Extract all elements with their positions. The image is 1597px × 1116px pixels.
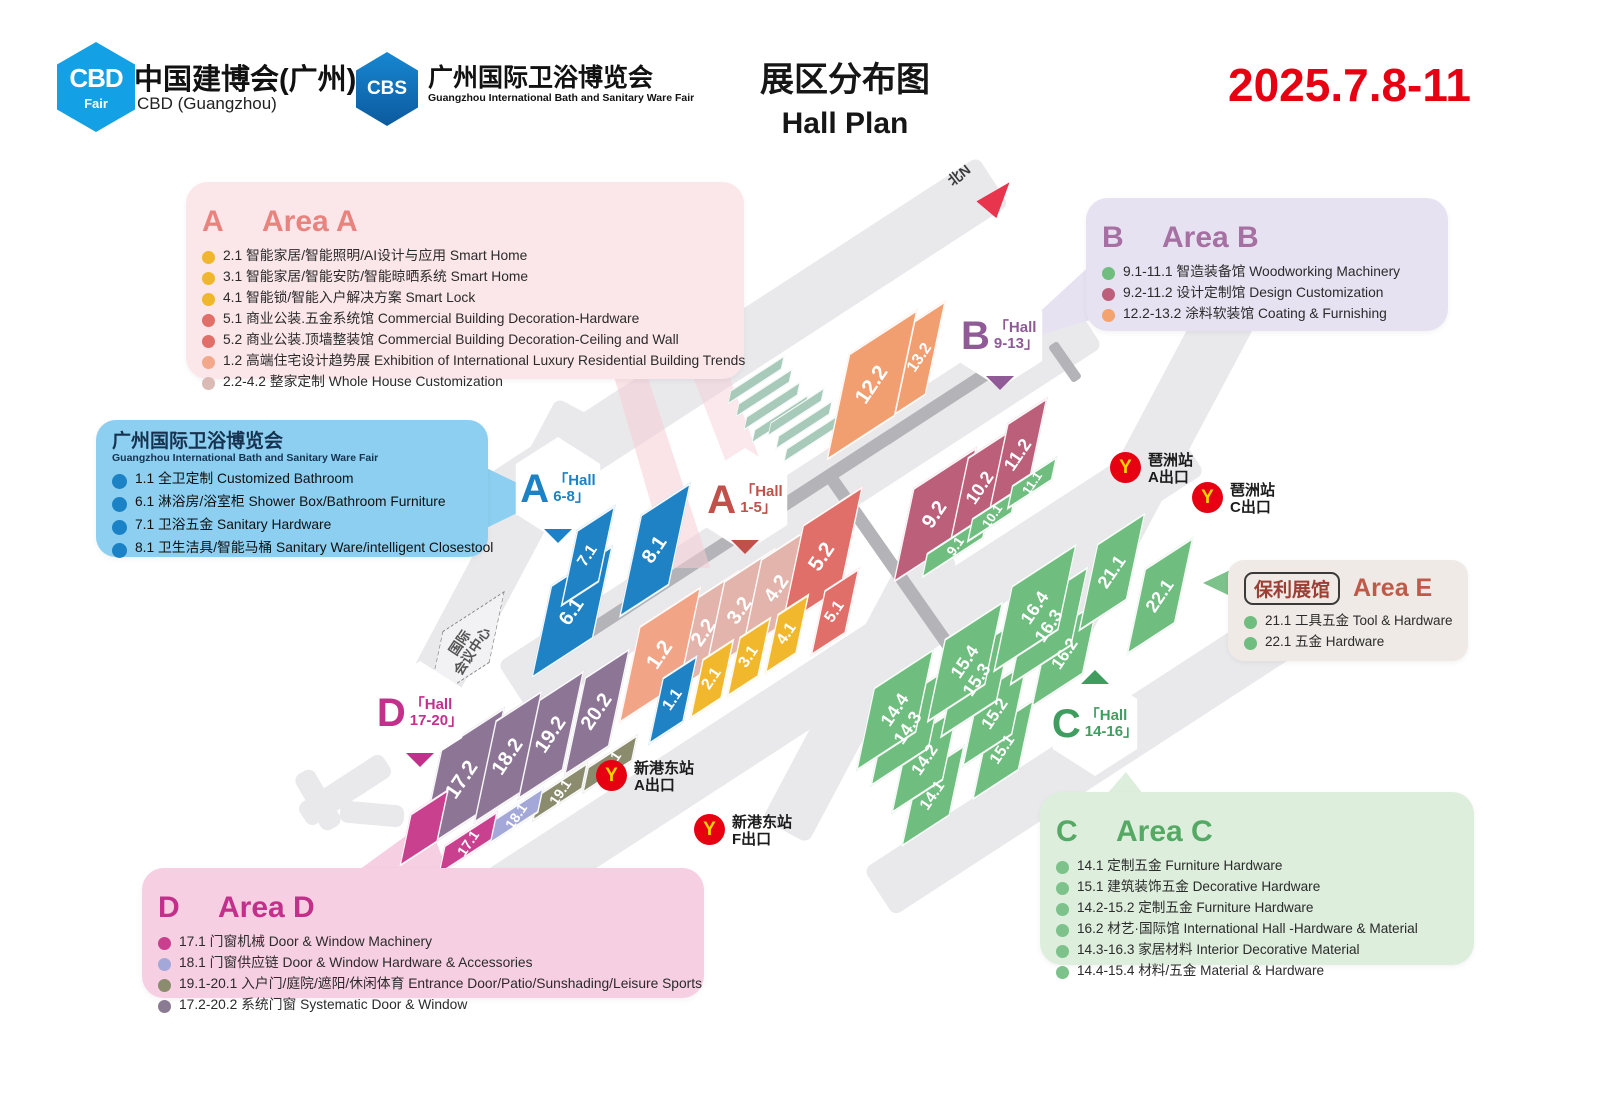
hall-plan-poster: CBD Fair 中国建博会(广州) CBD (Guangzhou) CBS 广… — [0, 0, 1597, 1116]
metro-exit-marker: Y琶洲站A出口 — [1110, 452, 1193, 486]
metro-logo-icon: Y — [694, 814, 725, 845]
legend-item: 17.1 门窗机械 Door & Window Machinery — [158, 934, 688, 950]
legend-item: 6.1 淋浴房/浴室柜 Shower Box/Bathroom Furnitur… — [112, 494, 472, 512]
legend-item-label: 18.1 门窗供应链 Door & Window Hardware & Acce… — [179, 955, 532, 970]
legend-item-label: 12.2-13.2 涂料软装馆 Coating & Furnishing — [1123, 306, 1387, 321]
legend-dot — [158, 937, 171, 950]
page-title: 展区分布图 Hall Plan — [700, 52, 990, 141]
legend-item-label: 8.1 卫生洁具/智能马桶 Sanitary Ware/intelligent … — [135, 540, 493, 555]
legend-item: 9.2-11.2 设计定制馆 Design Customization — [1102, 285, 1432, 301]
legend-item: 5.1 商业公装.五金系统馆 Commercial Building Decor… — [202, 311, 728, 327]
page-title-en: Hall Plan — [700, 107, 990, 141]
legend-dot — [112, 497, 127, 512]
legend-area-c: C区 Area C 14.1 定制五金 Furniture Hardware15… — [1040, 792, 1474, 965]
legend-item: 12.2-13.2 涂料软装馆 Coating & Furnishing — [1102, 306, 1432, 322]
badge-letter: A — [707, 481, 736, 519]
legend-dot — [112, 543, 127, 558]
legend-dot — [1056, 882, 1069, 895]
cbd-logo-text: CBD — [69, 63, 122, 94]
road — [339, 800, 405, 827]
legend-dot — [202, 251, 215, 264]
badge-letter: D — [377, 694, 406, 732]
legend-item: 16.2 材艺·国际馆 International Hall -Hardware… — [1056, 921, 1458, 937]
metro-exit-marker: Y新港东站A出口 — [596, 760, 694, 794]
legend-item-label: 5.1 商业公装.五金系统馆 Commercial Building Decor… — [223, 311, 639, 326]
legend-item-label: 6.1 淋浴房/浴室柜 Shower Box/Bathroom Furnitur… — [135, 494, 446, 509]
badge-pointer-icon — [544, 529, 572, 543]
legend-bath-fair: 广州国际卫浴博览会 Guangzhou International Bath a… — [96, 420, 488, 557]
legend-item: 4.1 智能锁/智能入户解决方案 Smart Lock — [202, 290, 728, 306]
legend-item-label: 7.1 卫浴五金 Sanitary Hardware — [135, 517, 331, 532]
legend-item: 3.1 智能家居/智能安防/智能晾晒系统 Smart Home — [202, 269, 728, 285]
legend-item: 22.1 五金 Hardware — [1244, 634, 1452, 650]
legend-item-label: 19.1-20.1 入户门/庭院/遮阳/休闲体育 Entrance Door/P… — [179, 976, 702, 991]
legend-dot — [1056, 861, 1069, 874]
legend-dot — [1244, 616, 1257, 629]
legend-dot — [112, 474, 127, 489]
legend-item-label: 3.1 智能家居/智能安防/智能晾晒系统 Smart Home — [223, 269, 528, 284]
legend-item-label: 4.1 智能锁/智能入户解决方案 Smart Lock — [223, 290, 475, 305]
event-date: 2025.7.8-11 — [1228, 58, 1471, 112]
legend-item: 17.2-20.2 系统门窗 Systematic Door & Window — [158, 997, 688, 1013]
legend-item: 21.1 工具五金 Tool & Hardware — [1244, 613, 1452, 629]
legend-area-a-title: A区 Area A — [202, 196, 728, 240]
legend-dot — [1102, 267, 1115, 280]
legend-item: 14.2-15.2 定制五金 Furniture Hardware — [1056, 900, 1458, 916]
badge-hall-range: 「Hall 17-20」 — [410, 697, 463, 729]
legend-item-label: 1.2 高端住宅设计趋势展 Exhibition of Internationa… — [223, 353, 745, 368]
legend-item-label: 14.3-16.3 家居材料 Interior Decorative Mater… — [1077, 942, 1360, 957]
cbd-fair-title: 中国建博会(广州) — [134, 56, 356, 98]
metro-exit-label: 琶洲站C出口 — [1230, 482, 1275, 516]
legend-dot — [1102, 309, 1115, 322]
badge-hall-range: 「Hall 1-5」 — [740, 484, 783, 516]
legend-dot — [202, 335, 215, 348]
legend-item-label: 16.2 材艺·国际馆 International Hall -Hardware… — [1077, 921, 1418, 936]
legend-item-label: 21.1 工具五金 Tool & Hardware — [1265, 613, 1453, 628]
badge-hall-range: 「Hall 6-8」 — [553, 473, 596, 505]
legend-item-label: 5.2 商业公装.顶墙整装馆 Commercial Building Decor… — [223, 332, 679, 347]
legend-item-label: 17.1 门窗机械 Door & Window Machinery — [179, 934, 432, 949]
legend-dot — [202, 377, 215, 390]
cbs-fair-title: 广州国际卫浴博览会 — [428, 58, 653, 94]
cbd-fair-subtitle: CBD (Guangzhou) — [137, 94, 277, 114]
legend-item-label: 1.1 全卫定制 Customized Bathroom — [135, 471, 354, 486]
metro-logo-icon: Y — [1192, 482, 1223, 513]
cbs-fair-logo: CBS — [356, 52, 418, 126]
legend-area-d: D区 Area D 17.1 门窗机械 Door & Window Machin… — [142, 868, 704, 998]
metro-exit-marker: Y琶洲站C出口 — [1192, 482, 1275, 516]
legend-item-label: 14.2-15.2 定制五金 Furniture Hardware — [1077, 900, 1313, 915]
legend-item: 14.3-16.3 家居材料 Interior Decorative Mater… — [1056, 942, 1458, 958]
legend-bath-title-en: Guangzhou International Bath and Sanitar… — [112, 452, 472, 464]
legend-area-e: 保利展馆 Area E 21.1 工具五金 Tool & Hardware22.… — [1228, 560, 1468, 661]
legend-dot — [1056, 966, 1069, 979]
legend-item-label: 9.2-11.2 设计定制馆 Design Customization — [1123, 285, 1383, 300]
legend-dot — [1056, 945, 1069, 958]
legend-item: 7.1 卫浴五金 Sanitary Hardware — [112, 517, 472, 535]
badge-letter: B — [961, 317, 990, 355]
page-title-zh: 展区分布图 — [700, 52, 990, 101]
legend-item: 1.1 全卫定制 Customized Bathroom — [112, 471, 472, 489]
legend-dot — [158, 979, 171, 992]
legend-item-label: 9.1-11.1 智造装备馆 Woodworking Machinery — [1123, 264, 1400, 279]
legend-item: 18.1 门窗供应链 Door & Window Hardware & Acce… — [158, 955, 688, 971]
legend-item-label: 2.1 智能家居/智能照明/AI设计与应用 Smart Home — [223, 248, 527, 263]
legend-item: 8.1 卫生洁具/智能马桶 Sanitary Ware/intelligent … — [112, 540, 472, 558]
legend-item: 19.1-20.1 入户门/庭院/遮阳/休闲体育 Entrance Door/P… — [158, 976, 688, 992]
legend-item: 14.1 定制五金 Furniture Hardware — [1056, 858, 1458, 874]
legend-dot — [1056, 903, 1069, 916]
legend-item: 1.2 高端住宅设计趋势展 Exhibition of Internationa… — [202, 353, 728, 369]
legend-dot — [202, 356, 215, 369]
legend-item-label: 2.2-4.2 整家定制 Whole House Customization — [223, 374, 503, 389]
legend-area-a: A区 Area A 2.1 智能家居/智能照明/AI设计与应用 Smart Ho… — [186, 182, 744, 379]
legend-item: 15.1 建筑装饰五金 Decorative Hardware — [1056, 879, 1458, 895]
legend-area-b-title: B区 Area B — [1102, 212, 1432, 256]
legend-item-label: 14.4-15.4 材料/五金 Material & Hardware — [1077, 963, 1324, 978]
legend-dot — [202, 272, 215, 285]
metro-logo-icon: Y — [1110, 452, 1141, 483]
legend-dot — [1244, 637, 1257, 650]
legend-item: 5.2 商业公装.顶墙整装馆 Commercial Building Decor… — [202, 332, 728, 348]
legend-item-label: 17.2-20.2 系统门窗 Systematic Door & Window — [179, 997, 467, 1012]
badge-pointer-icon — [731, 540, 759, 554]
badge-pointer-icon — [1081, 670, 1109, 684]
metro-logo-icon: Y — [596, 760, 627, 791]
legend-item: 9.1-11.1 智造装备馆 Woodworking Machinery — [1102, 264, 1432, 280]
cbd-fair-logo: CBD Fair — [57, 42, 135, 132]
legend-bath-title-zh: 广州国际卫浴博览会 — [112, 432, 472, 452]
poly-pavilion-badge: 保利展馆 — [1244, 572, 1340, 605]
legend-item: 14.4-15.4 材料/五金 Material & Hardware — [1056, 963, 1458, 979]
badge-pointer-icon — [986, 376, 1014, 390]
legend-item-label: 22.1 五金 Hardware — [1265, 634, 1384, 649]
metro-exit-marker: Y新港东站F出口 — [694, 814, 792, 848]
legend-item: 2.1 智能家居/智能照明/AI设计与应用 Smart Home — [202, 248, 728, 264]
legend-dot — [158, 1000, 171, 1013]
badge-letter: A — [520, 470, 549, 508]
legend-item-label: 14.1 定制五金 Furniture Hardware — [1077, 858, 1283, 873]
badge-hall-range: 「Hall 14-16」 — [1085, 708, 1138, 740]
legend-dot — [1056, 924, 1069, 937]
legend-area-b: B区 Area B 9.1-11.1 智造装备馆 Woodworking Mac… — [1086, 198, 1448, 331]
legend-dot — [158, 958, 171, 971]
metro-exit-label: 新港东站A出口 — [634, 760, 694, 794]
legend-item-label: 15.1 建筑装饰五金 Decorative Hardware — [1077, 879, 1320, 894]
metro-exit-label: 新港东站F出口 — [732, 814, 792, 848]
legend-dot — [112, 520, 127, 535]
legend-area-c-title: C区 Area C — [1056, 806, 1458, 850]
metro-exit-label: 琶洲站A出口 — [1148, 452, 1193, 486]
legend-area-d-title: D区 Area D — [158, 882, 688, 926]
badge-hall-range: 「Hall 9-13」 — [994, 320, 1039, 352]
badge-letter: C — [1052, 705, 1081, 743]
legend-dot — [202, 293, 215, 306]
legend-item: 2.2-4.2 整家定制 Whole House Customization — [202, 374, 728, 390]
cbs-fair-subtitle: Guangzhou International Bath and Sanitar… — [428, 92, 694, 104]
legend-area-e-title: 保利展馆 Area E — [1244, 572, 1452, 605]
badge-pointer-icon — [406, 753, 434, 767]
legend-dot — [1102, 288, 1115, 301]
legend-dot — [202, 314, 215, 327]
cbs-logo-text: CBS — [367, 78, 407, 100]
